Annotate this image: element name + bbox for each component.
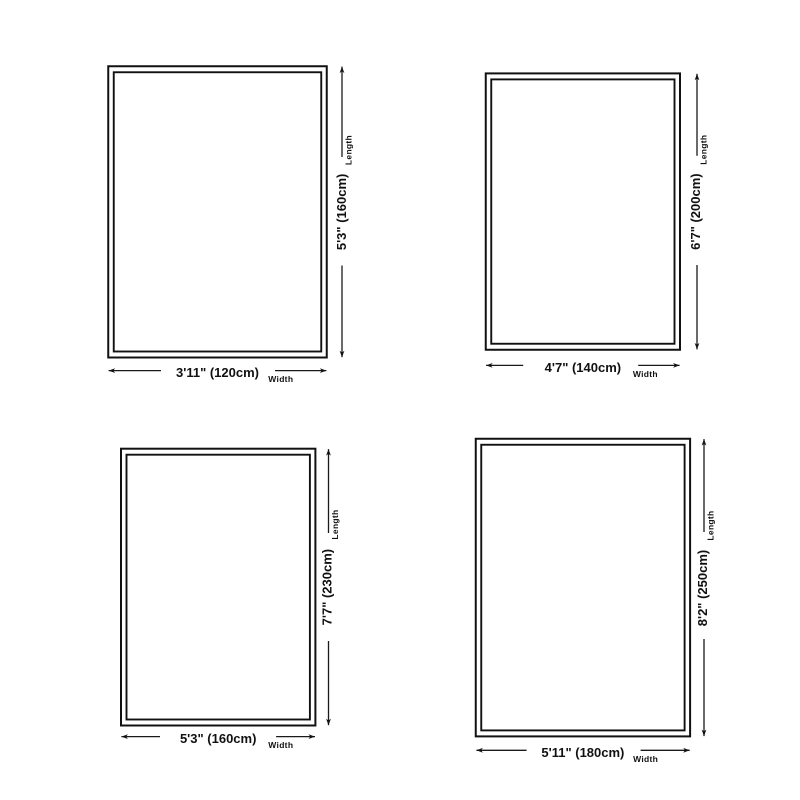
svg-text:Length: Length [705, 510, 715, 540]
svg-text:Width: Width [633, 369, 658, 379]
svg-text:Width: Width [633, 754, 658, 764]
svg-text:Width: Width [268, 374, 293, 384]
svg-text:7'7" (230cm): 7'7" (230cm) [320, 549, 335, 625]
svg-text:4'7" (140cm): 4'7" (140cm) [545, 360, 621, 375]
svg-text:5'11" (180cm): 5'11" (180cm) [541, 745, 624, 760]
svg-text:Length: Length [343, 135, 353, 165]
svg-text:Length: Length [698, 135, 708, 165]
svg-text:Width: Width [268, 740, 293, 750]
svg-text:3'11" (120cm): 3'11" (120cm) [176, 365, 259, 380]
svg-text:Length: Length [330, 509, 340, 539]
svg-text:8'2" (250cm): 8'2" (250cm) [695, 550, 710, 626]
svg-text:5'3" (160cm): 5'3" (160cm) [180, 731, 256, 746]
svg-text:6'7" (200cm): 6'7" (200cm) [688, 173, 703, 249]
svg-text:5'3" (160cm): 5'3" (160cm) [334, 174, 349, 250]
